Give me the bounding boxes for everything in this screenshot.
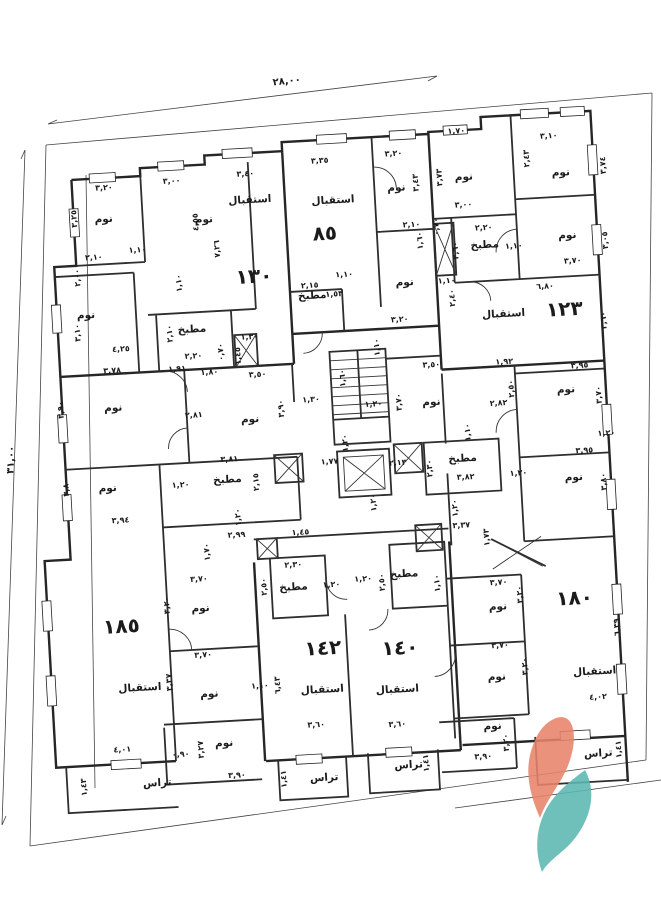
dimension-label: ١,٧٠ <box>202 543 212 561</box>
room-label: تراس <box>584 747 613 761</box>
dimension-label: ٣,٤٣ <box>411 174 421 192</box>
dimension-label: ١,١٠ <box>251 681 269 691</box>
floor-plan-page: ٢٨,٠٠ ٣١,٠٠ نومنومنومنومنومنومنومنومنومن… <box>0 0 661 920</box>
room-label: نوم <box>487 671 506 684</box>
dimension-label: ١,١٠ <box>463 423 473 441</box>
room-label: مطبخ <box>177 323 206 337</box>
dimension-label: ٢,٥٠ <box>377 573 387 591</box>
dimension-label: ١,١٠ <box>335 269 353 279</box>
dimension-label: ٣,٢٠ <box>501 734 511 752</box>
dimension-label: ٦,٤٣ <box>272 676 282 694</box>
room-label: مطبخ <box>298 289 327 303</box>
dimension-label: ٢,٨٢ <box>489 398 507 408</box>
room-label: نوم <box>556 383 575 396</box>
dimension-label: ١,٢٠ <box>450 499 460 517</box>
dimension-label: ٣,٣٥ <box>311 156 329 166</box>
room-label: مطبخ <box>470 238 499 252</box>
room-label: نوم <box>558 229 577 242</box>
room-label: استقبال <box>118 681 162 695</box>
dimension-label: ٠,٧٠ <box>216 343 226 361</box>
room-labels: نومنومنومنومنومنومنومنومنومنومنومنومنومن… <box>70 164 622 796</box>
room-label: استقبال <box>573 664 617 678</box>
dimension-label: ٤,٢٥ <box>112 344 130 354</box>
room-label: مطبخ <box>213 473 242 487</box>
dimension-label: ٢,١٣ <box>389 458 407 468</box>
dimension-label: ٣,١٠ <box>72 324 82 342</box>
dimension-label: ٣,٧٠ <box>594 386 604 404</box>
dimension-label: ٢,١٠ <box>85 252 103 262</box>
room-label: نوم <box>422 396 441 409</box>
room-label: نوم <box>488 600 507 613</box>
apartment-number: ١٤٠ <box>381 634 419 660</box>
dimension-label: ١,١٠ <box>372 338 382 356</box>
room-label: نوم <box>98 482 117 495</box>
dimension-label: ١,٢٠ <box>354 574 372 584</box>
room-label: نوم <box>483 720 502 733</box>
room-label: نوم <box>387 181 406 194</box>
dimension-label: ٣,٨٠ <box>61 479 71 497</box>
dimension-label: ٣,٦٠ <box>599 311 609 329</box>
dimension-label: ٣,٣٧ <box>164 673 174 691</box>
dimension-label: ١,٢٠ <box>509 468 527 478</box>
dimension-label: ١,٥٣ <box>325 289 343 299</box>
room-label: نوم <box>104 402 123 415</box>
dimension-label: ١,٧٧ <box>320 457 338 467</box>
dimension-label: ٢,١٥ <box>251 473 261 491</box>
dimension-label: ٣,٠٠ <box>163 176 181 186</box>
dimension-label: ٣,١٠ <box>540 131 558 141</box>
dimension-label: ٢,١٠ <box>165 325 175 343</box>
dimension-label: ١,٢٠ <box>364 399 382 409</box>
dimension-label: ٣,٧٠ <box>489 577 507 587</box>
dimension-label: ٣,٦٠ <box>388 719 406 729</box>
dimension-label: ٣,٩٥ <box>575 445 593 455</box>
apartment-number: ١٨٠ <box>556 585 594 611</box>
room-label: نوم <box>395 276 414 289</box>
room-label: مطبخ <box>448 452 477 466</box>
dimension-label: ٢,٠٠ <box>72 269 82 287</box>
building-plan: نومنومنومنومنومنومنومنومنومنومنومنومنومن… <box>16 105 642 814</box>
dimension-label: ٧,٢٦ <box>212 240 222 258</box>
dimension-label: ٣,٢٠ <box>162 596 172 614</box>
dimension-label: ٢,١٠ <box>402 220 420 230</box>
apartment-number: ١٣٠ <box>235 263 273 289</box>
dimension-label: ٦,٣٩ <box>612 618 622 636</box>
dimension-label: ١,٦٠ <box>415 232 425 250</box>
dimension-label: ٣,٧٣ <box>434 168 444 186</box>
apartment-number: ١٤٢ <box>304 635 342 661</box>
apartment-number: ١٢٣ <box>545 296 583 322</box>
dimension-label: ٣,٠٠ <box>454 200 472 210</box>
dimension-label: ٣,٣٧ <box>452 520 470 530</box>
dimension-label: ٤,٠٢ <box>589 692 607 702</box>
dimension-label: ٣,٩٠ <box>228 770 246 780</box>
room-label: مطبخ <box>279 580 308 594</box>
room-label: نوم <box>215 737 234 750</box>
dimension-labels: ٣,٢٠٣,٠٠٣,٤٠٤,٥٥٧,٢٦٣,٢٥٢,١٠٢,٠٠٣,١٠٤,٢٥… <box>42 118 641 799</box>
dimension-label: ٠,٧٠ <box>431 218 441 236</box>
dimension-label: ١,٤٥ <box>291 527 309 537</box>
dimension-label: ٣,٨٠ <box>599 473 609 491</box>
dimension-label: ٢,١٥ <box>301 280 319 290</box>
dimension-label: ١,١٠ <box>505 241 523 251</box>
dimension-label: ٣,٧٠ <box>194 650 212 660</box>
dimension-label: ٢,٤٣ <box>521 149 531 167</box>
room-label: تراس <box>143 776 172 790</box>
dimension-label: ٠,٩٠ <box>172 749 190 759</box>
dimension-label: ٢,٤٠ <box>447 289 457 307</box>
dimension-label: ٣,٢٠ <box>520 657 530 675</box>
room-label: نوم <box>454 171 473 184</box>
dimension-label: ٣,٧٠ <box>491 640 509 650</box>
elevator-shaft <box>343 455 385 491</box>
room-label: استقبال <box>376 682 420 696</box>
room-label: استقبال <box>482 307 526 321</box>
overall-width-dimension: ٢٨,٠٠ <box>272 75 301 89</box>
dimension-label: ١,٤١ <box>279 770 289 788</box>
dimension-label: ٣,٢٧ <box>196 740 206 758</box>
dimension-label: ٣,٥٠ <box>422 360 440 370</box>
dimension-label: ٣,٢٠ <box>95 183 113 193</box>
dimension-label: ٣,٢٠ <box>515 586 525 604</box>
dimension-label: ٢,٨١ <box>185 410 203 420</box>
dimension-label: ٤,٥٥ <box>190 213 200 231</box>
dimension-label: ٣,٩٠ <box>474 751 492 761</box>
room-label: نوم <box>241 413 260 426</box>
dimension-label: ٢,٦٠ <box>450 242 460 260</box>
dimension-label: ٣,٢٠ <box>391 314 409 324</box>
dimension-label: ٣,٢٠ <box>384 148 402 158</box>
dimension-label: ٣,٧٠ <box>190 574 208 584</box>
dimension-label: ١,٩٢ <box>495 357 513 367</box>
dimension-label: ١,٩١ <box>168 364 186 374</box>
dimension-label: ١,٢٠ <box>322 580 340 590</box>
room-label: نوم <box>77 309 96 322</box>
dimension-label: ١,١٠ <box>438 276 456 286</box>
dimension-label: ٢,٢٠ <box>184 351 202 361</box>
dimension-label: ١,٦٠ <box>337 369 347 387</box>
room-label: استقبال <box>311 193 355 207</box>
dimension-label: ٣,٩٤ <box>111 515 129 525</box>
dimension-label: ٢,٥٠ <box>259 578 269 596</box>
dimension-label: ١,٧٠ <box>447 126 465 136</box>
room-label: استقبال <box>228 193 272 207</box>
room-label: تراس <box>310 771 339 785</box>
dimension-label: ٣,٧٤ <box>598 156 608 174</box>
dimension-label: ٣,٥٠ <box>248 369 266 379</box>
room-label: تراس <box>394 758 423 772</box>
dimension-label: ٣,٨١ <box>220 454 238 464</box>
dimension-label: ١,٧٣ <box>482 528 492 546</box>
dimension-label: ١,٣٠ <box>240 332 258 342</box>
dimension-label: ١,٤٣ <box>79 778 89 796</box>
dimension-label: ٣,٧٠ <box>564 256 582 266</box>
dimension-label: ١,٣٠ <box>302 394 320 404</box>
room-label: مطبخ <box>389 567 418 581</box>
dimension-label: ١,٢٠ <box>368 494 378 512</box>
apartment-number: ٨٥ <box>312 220 338 245</box>
dimension-label: ٣,٠٥ <box>600 231 610 249</box>
dimension-label: ٣,٤٠ <box>236 169 254 179</box>
dimension-label: ٣,٦٠ <box>307 720 325 730</box>
dimension-label: ١,٤٥ <box>233 347 243 365</box>
room-label: نوم <box>191 602 210 615</box>
dimension-label: ٢,٣٠ <box>425 459 435 477</box>
room-label: نوم <box>551 166 570 179</box>
dimension-label: ٣,٧٨ <box>103 366 121 376</box>
dimension-label: ٣,٢٥ <box>69 210 79 228</box>
room-label: استقبال <box>300 683 344 697</box>
dimension-label: ٣,٨٢ <box>457 472 475 482</box>
dimension-label: ٢,٩٩ <box>227 530 245 540</box>
overall-height-dimension: ٣١,٠٠ <box>5 445 17 474</box>
dimension-label: ٢,٢٠ <box>475 223 493 233</box>
dimension-label: ٣,٧٠ <box>394 393 404 411</box>
room-label: نوم <box>200 688 219 701</box>
dimension-label: ٢,٣٠ <box>284 560 302 570</box>
two-leaf-logo <box>528 717 591 872</box>
dimension-label: ٦,٨٠ <box>536 281 554 291</box>
dimension-label: ٣,٩٥ <box>570 360 588 370</box>
dimension-label: ١,١٠ <box>128 245 146 255</box>
dimension-label: ١,١٠ <box>174 274 184 292</box>
apartment-number: ١٨٥ <box>102 613 140 639</box>
dimension-label: ١,٢٠ <box>233 508 243 526</box>
dimension-label: ٢,٥٠ <box>506 380 516 398</box>
dimension-label: ٣,٩٠ <box>56 401 66 419</box>
dimension-label: ٤,٠١ <box>113 745 131 755</box>
dimension-label: ٣,٩٠ <box>276 400 286 418</box>
dimension-label: ١,٢٠ <box>597 428 615 438</box>
room-label: نوم <box>94 213 113 226</box>
dimension-label: ١,١٠ <box>432 574 442 592</box>
floor-plan-svg: ٢٨,٠٠ ٣١,٠٠ نومنومنومنومنومنومنومنومنومن… <box>0 0 661 920</box>
dimension-label: ١,٢٠ <box>340 434 350 452</box>
dimension-label: ١,٤١ <box>421 754 431 772</box>
dimension-label: ١,٤١ <box>614 740 624 758</box>
dimension-label: ١,٨٠ <box>200 367 218 377</box>
dimension-label: ١,٢٠ <box>172 480 190 490</box>
room-label: نوم <box>564 471 583 484</box>
